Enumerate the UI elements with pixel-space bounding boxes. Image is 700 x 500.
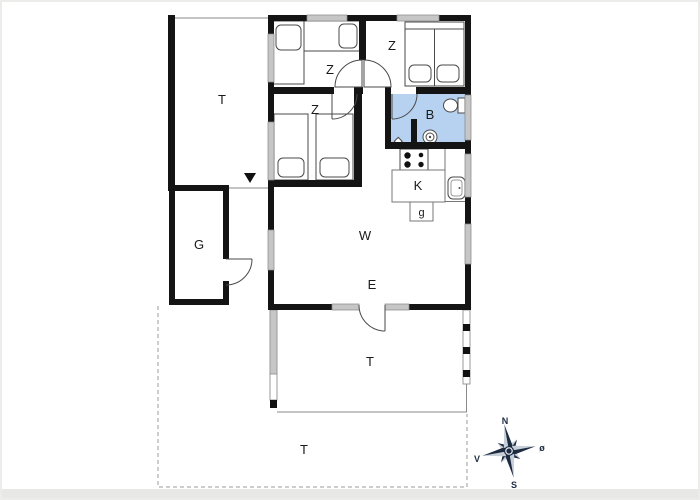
burner [418,162,423,167]
window [465,154,471,197]
bed-pillow [437,65,459,82]
room-label-bedroom-top-right: Z [388,38,396,53]
railing-post [270,400,277,408]
bed-pillow [409,65,431,82]
garage-wall-west [169,185,175,305]
entrance-marker-icon [244,173,256,183]
room-label-living: W [359,228,372,243]
door-swing-bedroom-top-right [364,60,391,87]
room-label-terrace-attached: T [366,354,374,369]
wall-bathroom-west [385,94,391,149]
garage-wall-north [169,185,229,191]
wall-bedroom-east [354,94,362,187]
floorplan-page: T Z Z Z B K g W E G T T [0,0,700,500]
terrace-railing-left [270,310,277,374]
room-label-bathroom: B [426,107,435,122]
window [307,15,347,21]
wall-interior [268,87,334,94]
wall-stub [385,87,391,94]
floorplan-canvas: T Z Z Z B K g W E G T T [2,2,700,500]
room-label-bedroom-mid-left: Z [311,102,319,117]
room-label-bedroom-top-left: Z [326,62,334,77]
window [465,95,471,140]
room-label-entry: E [368,277,377,292]
wall-bathroom-north [416,87,471,94]
window [268,230,274,270]
terrace-railing-left-lower [270,374,277,400]
wall-bathroom-south [385,142,471,149]
toilet-tank-icon [458,98,465,113]
garage-wall-east-upper [223,185,229,259]
stove-icon [400,149,428,170]
wall-north [268,15,471,21]
railing-post [463,370,470,377]
railing-post [463,347,470,354]
bed-pillow [276,25,301,50]
bed-pillow [320,158,349,177]
compass-east-label: ø [539,443,545,453]
window [268,34,274,82]
toilet-bowl-icon [444,99,458,112]
room-label-terrace-top: T [218,92,226,107]
ground-terrace-dashed-outline [158,306,467,487]
railing-post [463,324,470,331]
door-swing-bedroom-top-left [335,60,362,87]
page-bottom-strip [2,489,698,498]
wall-stub [354,87,363,94]
door-swing-garage [226,259,252,285]
wall-bedroom-divider [359,15,366,60]
compass-west-label: V [474,454,480,464]
shower-drain-dot [429,136,431,138]
burner [419,153,424,158]
window [385,304,409,310]
window [268,122,274,180]
compass-rose: N ø V S [474,416,545,490]
window [465,224,471,264]
window [332,304,359,310]
sink-tap [459,187,461,189]
burner [404,152,410,158]
bed-pillow [339,24,357,48]
compass-north-label: N [502,416,509,426]
garage-wall-south [169,299,229,305]
wall-shower-stub [411,119,417,149]
room-label-kitchen: K [414,178,423,193]
burner [404,161,410,167]
room-label-garage: G [194,237,204,252]
terrace-windbreak-wall [168,15,175,191]
room-label-terrace-ground: T [300,442,308,457]
wall-bedroom-south [268,180,362,187]
door-swing-entrance [359,305,385,331]
room-label-utility: g [418,207,424,219]
bed-pillow [278,158,304,177]
window [397,15,439,21]
